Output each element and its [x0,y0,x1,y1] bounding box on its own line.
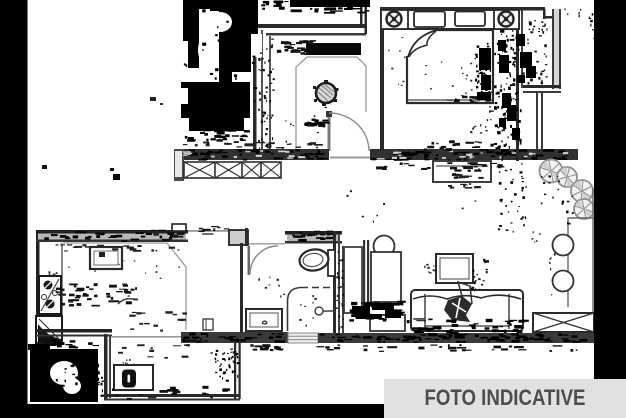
svg-text:FOTO INDICATIVE: FOTO INDICATIVE [425,385,586,410]
